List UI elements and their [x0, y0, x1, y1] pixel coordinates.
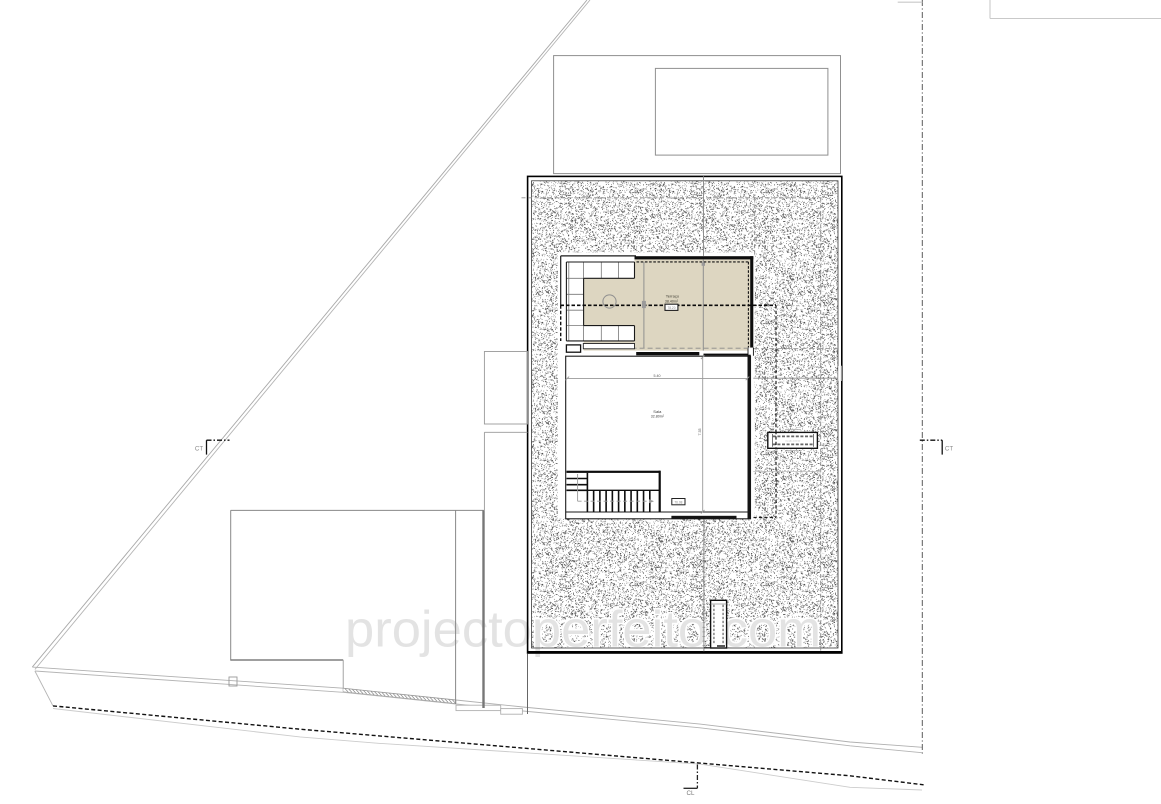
svg-text:5.40: 5.40	[654, 374, 661, 378]
svg-text:CL: CL	[687, 790, 695, 797]
svg-text:78.20: 78.20	[668, 306, 676, 310]
svg-text:Terraço: Terraço	[666, 294, 680, 299]
svg-text:76.08: 76.08	[674, 500, 682, 504]
svg-text:38.40m²: 38.40m²	[665, 300, 679, 304]
svg-text:CT: CT	[945, 445, 953, 452]
svg-text:projectoperfeito.com: projectoperfeito.com	[345, 601, 821, 658]
svg-text:7.35: 7.35	[698, 429, 702, 436]
svg-text:CT: CT	[195, 445, 203, 452]
svg-text:32.80m²: 32.80m²	[651, 414, 665, 418]
svg-text:escada exterior: escada exterior	[785, 440, 800, 443]
